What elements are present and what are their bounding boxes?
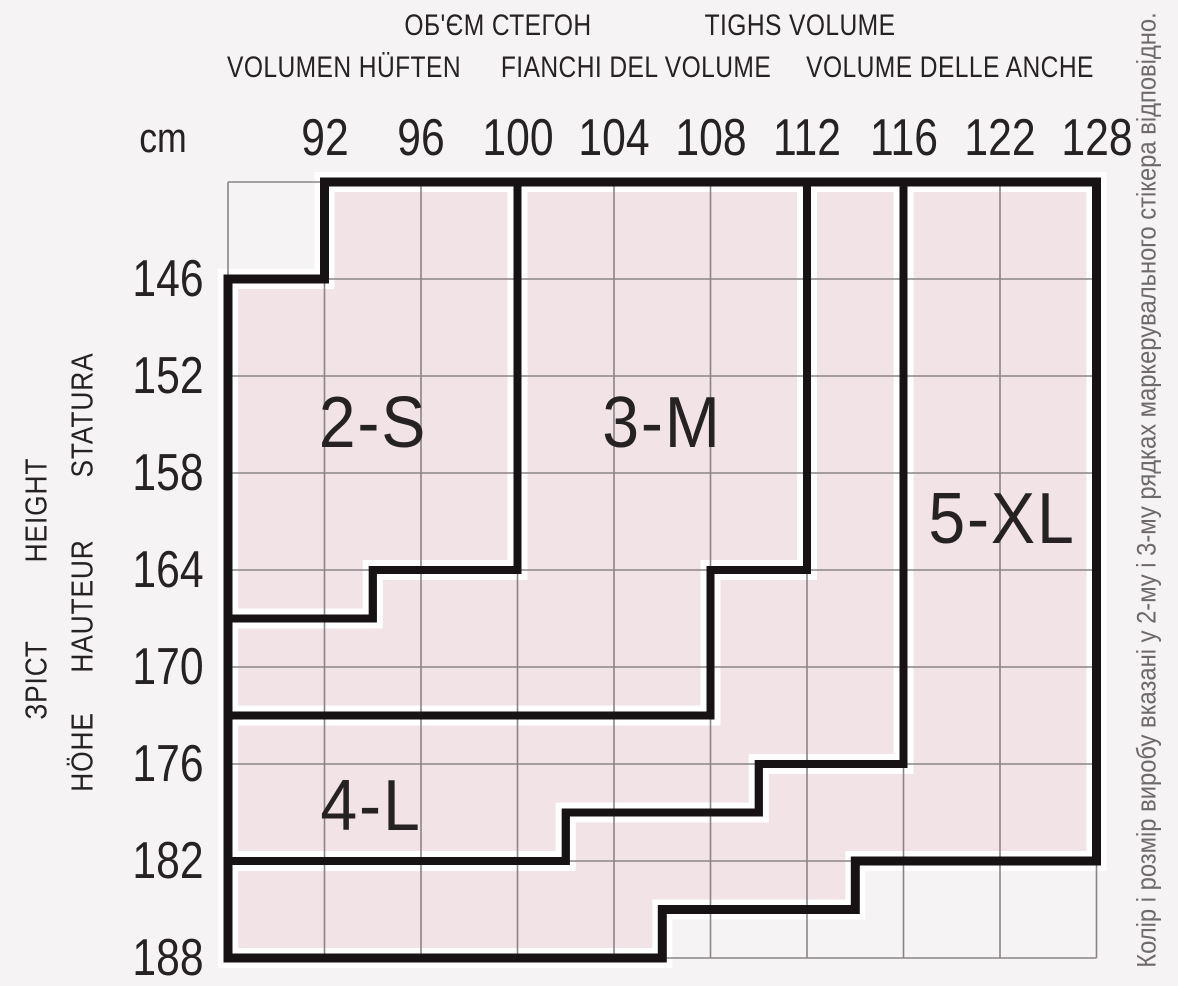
size-chart-page: ОБ'ЄМ СТЕГОН TIGHS VOLUME VOLUMEN HÜFTEN… [0, 0, 1178, 986]
size-chart-canvas [0, 0, 1178, 986]
